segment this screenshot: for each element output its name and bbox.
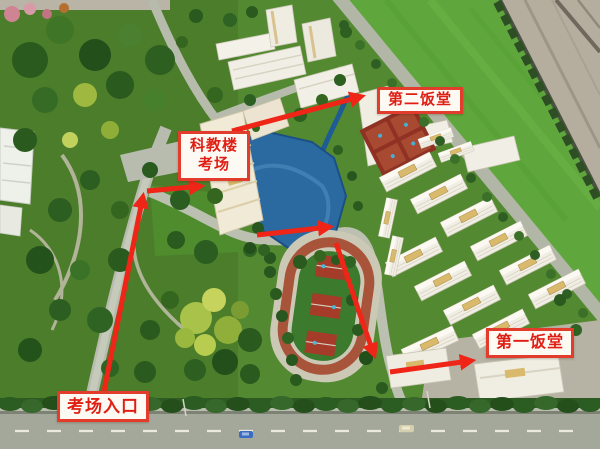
label-exam-building: 科教楼 考场	[178, 131, 250, 181]
campus-model-map: 科教楼 考场 第二饭堂 第一饭堂 考场入口	[0, 0, 600, 449]
label-exam-building-line2: 考场	[190, 156, 238, 175]
label-first-canteen: 第一饭堂	[486, 328, 574, 358]
label-exam-building-line1: 科教楼	[190, 137, 238, 156]
car-blue	[239, 431, 253, 438]
campus-model-photo	[0, 0, 600, 449]
label-exam-entrance: 考场入口	[57, 391, 149, 422]
label-second-canteen: 第二饭堂	[377, 87, 463, 114]
car-tan	[399, 425, 414, 432]
